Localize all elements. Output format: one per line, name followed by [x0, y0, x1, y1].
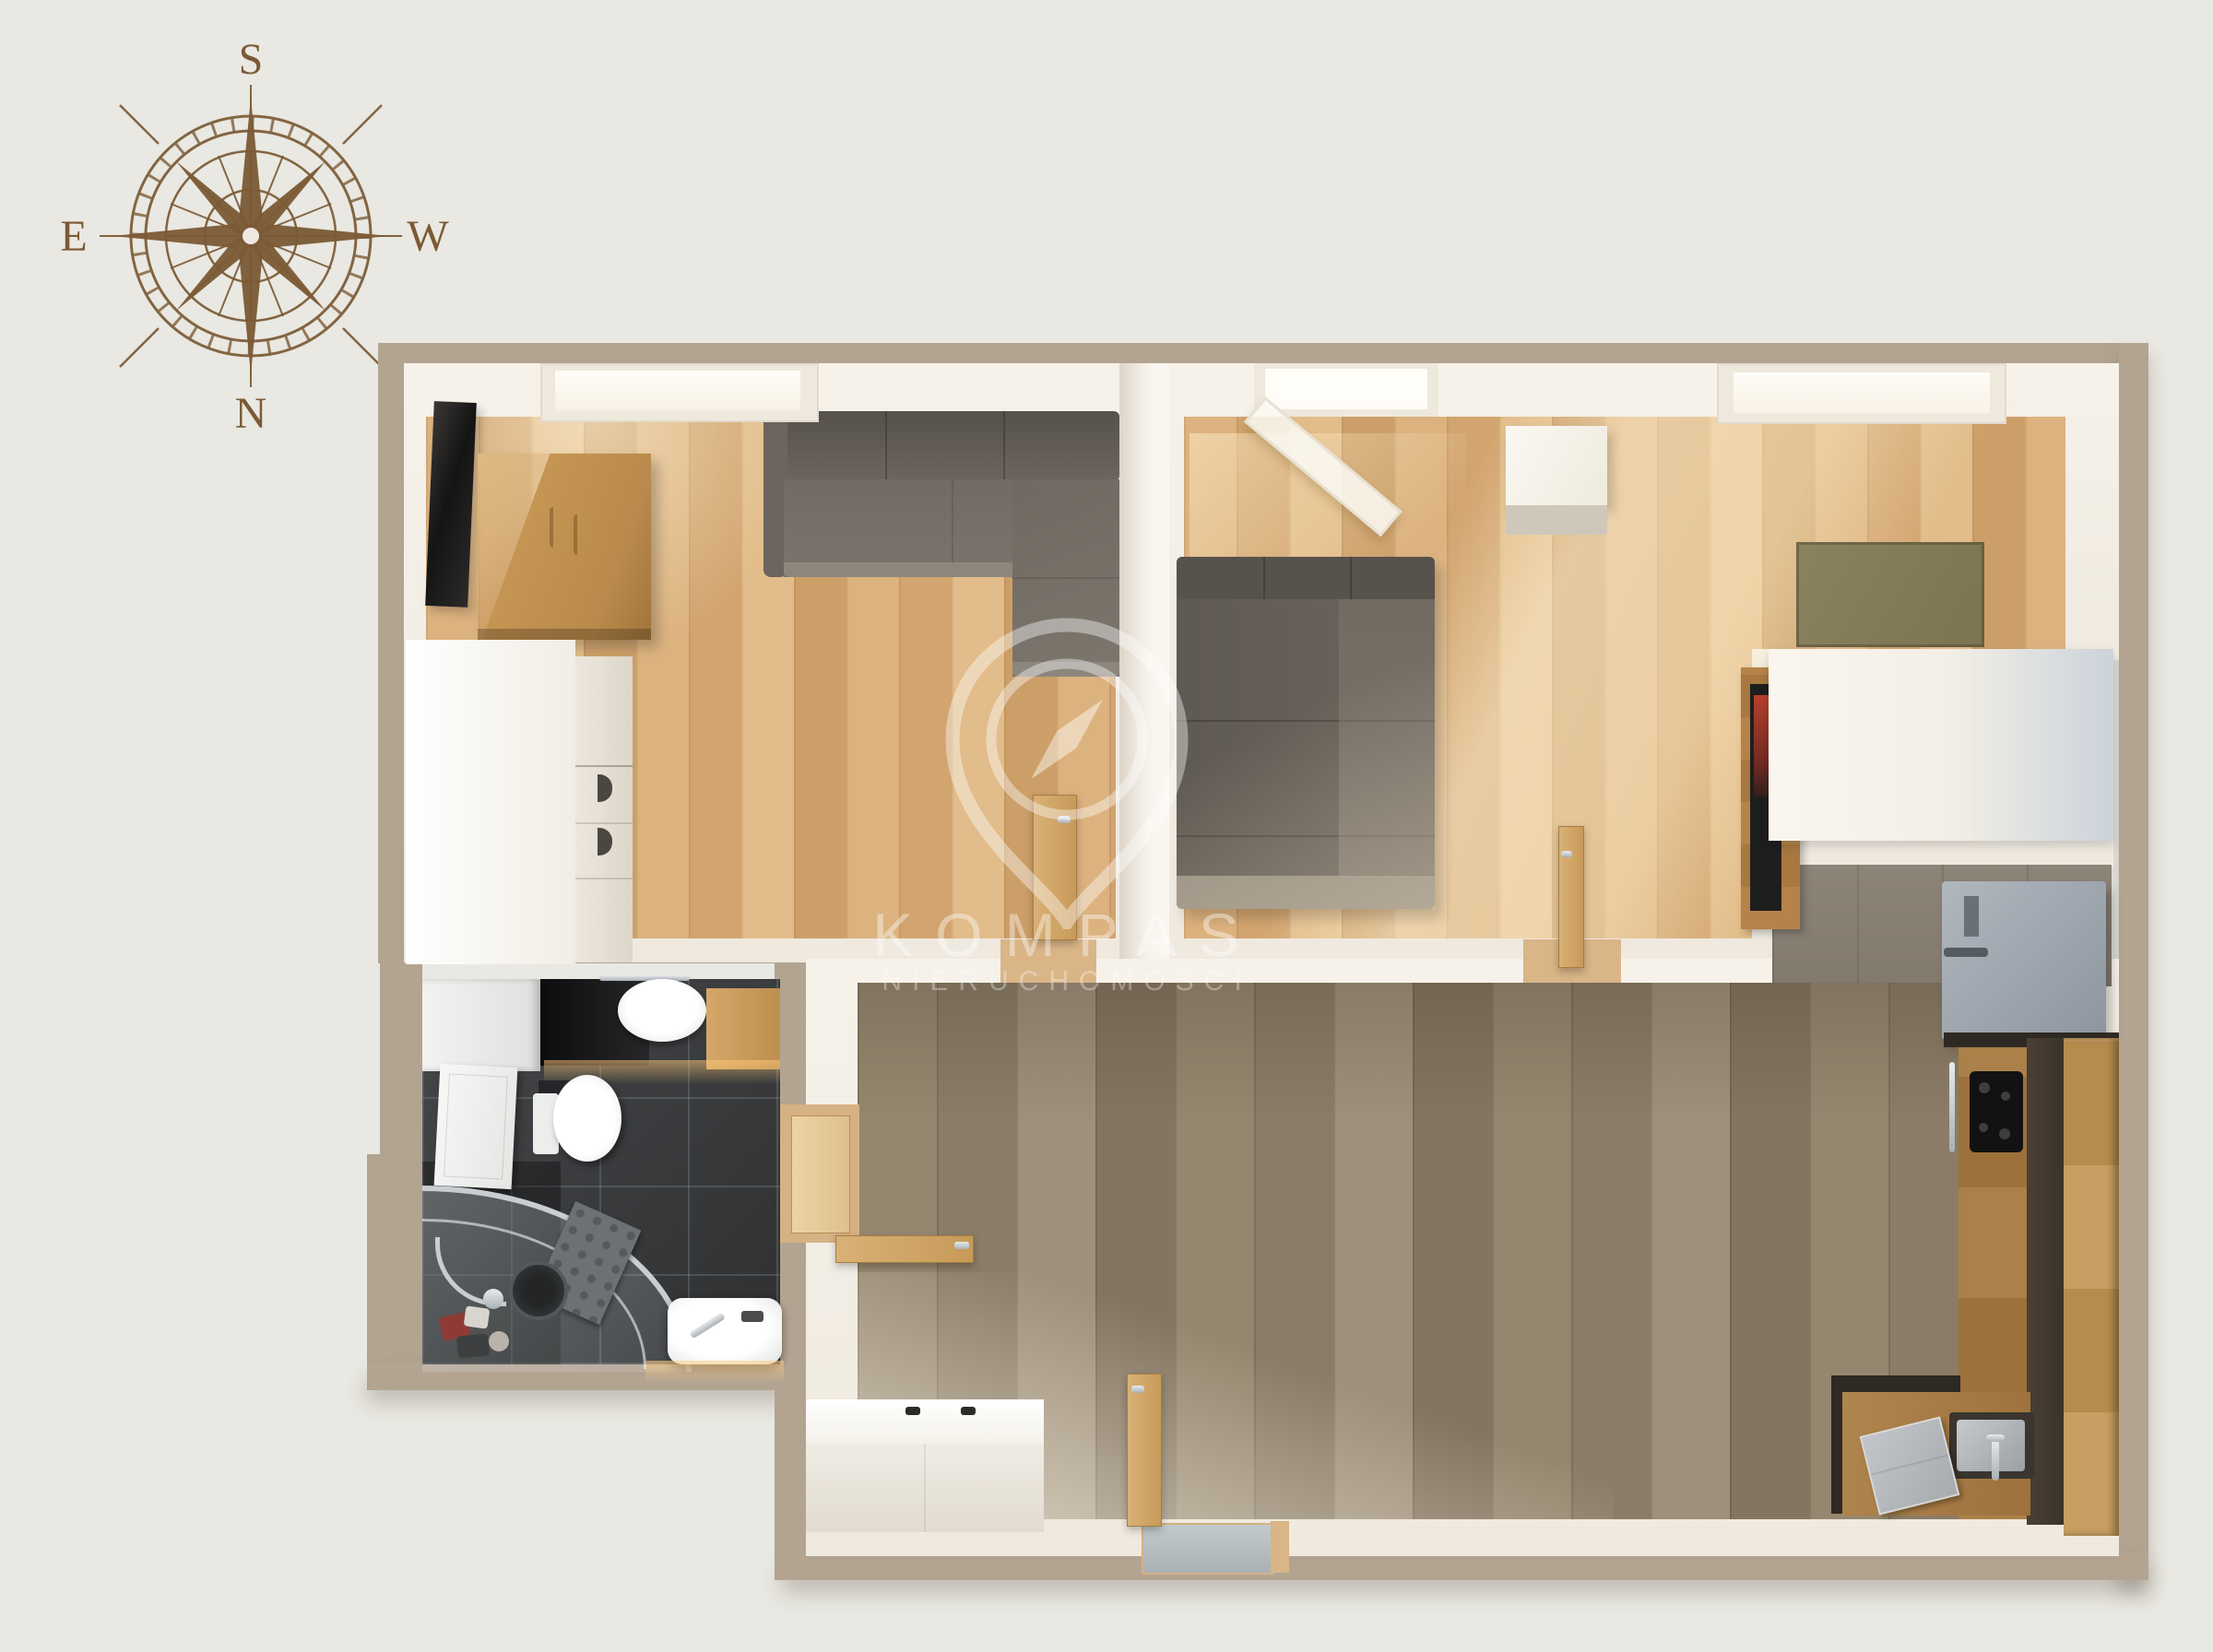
wall-left-upper — [378, 343, 406, 953]
wall-bottom — [782, 1552, 2148, 1580]
bedroom1-door-threshold — [1000, 939, 1096, 983]
door-handle — [1561, 851, 1572, 857]
door-handle — [1058, 816, 1071, 823]
fridge-vent — [1964, 896, 1979, 937]
divider-wall — [1119, 363, 1171, 962]
entrance-door-open — [1127, 1374, 1162, 1527]
wall-bathroom-left-upper — [380, 938, 422, 1171]
bedroom1-door-open — [1033, 795, 1077, 940]
bathroom-doorway-frame — [780, 1104, 859, 1243]
wall-right — [2119, 343, 2148, 1580]
entrance-doormat — [1142, 1523, 1274, 1575]
sofa-bedroom2 — [1177, 557, 1435, 909]
kitchen-sink — [1949, 1412, 2034, 1479]
dresser-handle — [598, 828, 612, 855]
wall-bathroom-left-lower — [367, 1154, 422, 1390]
bathroom-sink-top — [618, 979, 706, 1042]
cabinet-bedroom2-top — [1506, 426, 1607, 505]
wall-top — [378, 343, 2148, 363]
kitchen-sink-counter-edge — [1833, 1375, 1960, 1392]
bathroom-cabinet-white — [422, 979, 540, 1071]
shower-handset — [483, 1289, 503, 1309]
bathroom-cabinet-wood — [706, 988, 780, 1069]
tv-bedroom1 — [425, 401, 477, 608]
dresser-bedroom1-top — [406, 640, 575, 964]
sideboard-livingroom-front — [806, 1444, 1044, 1532]
bathroom-glow-bottom — [645, 1361, 784, 1383]
dresser-handle — [598, 774, 612, 802]
kitchen-faucet — [1992, 1438, 1999, 1481]
cooktop — [1970, 1071, 2023, 1152]
bathroom-toiletries — [441, 1307, 520, 1366]
toilet-bowl — [553, 1075, 621, 1162]
bathroom-door-open — [835, 1235, 974, 1263]
wardrobe-bedroom2 — [1769, 649, 2113, 841]
kitchen-tall-cabinets — [2064, 1038, 2119, 1536]
wardrobe-bedroom1 — [478, 454, 651, 640]
door-handle — [954, 1242, 969, 1249]
sofa-bedroom1 — [763, 411, 1119, 677]
bathroom-door-white — [434, 1064, 518, 1189]
dresser-bedroom1-front — [575, 656, 633, 962]
fridge-handle — [1944, 948, 1988, 957]
apartment-3d-floor-plan — [0, 0, 2213, 1652]
bedroom2-door-open — [1558, 826, 1584, 968]
window-bedroom2-open — [1254, 363, 1438, 417]
door-handle — [1131, 1386, 1144, 1393]
sideboard-knob — [905, 1407, 920, 1415]
sideboard-livingroom-top — [806, 1399, 1044, 1444]
fridge — [1942, 881, 2106, 1040]
bathroom-sink-bottom — [668, 1298, 782, 1364]
entrance-threshold — [1271, 1521, 1289, 1573]
cabinet-bedroom2-front — [1506, 505, 1607, 535]
rug-bedroom2 — [1796, 542, 1984, 647]
window-bedroom2-right — [1717, 363, 2006, 424]
floor-plan-render: S N E W — [0, 0, 2213, 1652]
bathroom-faucet-bottom — [689, 1312, 726, 1339]
sideboard-knob — [961, 1407, 976, 1415]
window-bedroom1 — [540, 363, 819, 422]
kitchen-towel-rail — [1949, 1062, 1955, 1152]
